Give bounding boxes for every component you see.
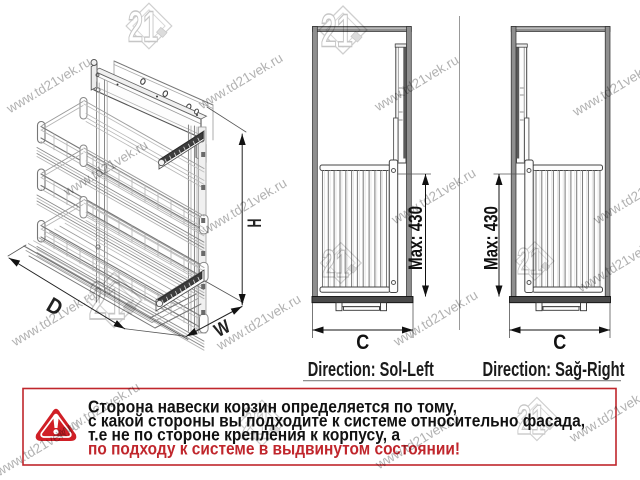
svg-text:21: 21 — [321, 6, 353, 58]
svg-text:C: C — [356, 331, 369, 354]
svg-text:21: 21 — [322, 242, 349, 285]
svg-text:21: 21 — [128, 2, 158, 51]
svg-text:21: 21 — [89, 272, 125, 331]
svg-text:C: C — [553, 331, 566, 354]
svg-text:Direction: Sağ-Right: Direction: Sağ-Right — [483, 359, 625, 381]
svg-text:21: 21 — [517, 242, 542, 283]
svg-text:Max: 430: Max: 430 — [482, 206, 503, 270]
svg-text:21: 21 — [241, 399, 271, 448]
svg-text:21: 21 — [517, 398, 546, 444]
svg-text:Direction: Sol-Left: Direction: Sol-Left — [308, 359, 434, 381]
svg-text:H: H — [245, 219, 266, 228]
